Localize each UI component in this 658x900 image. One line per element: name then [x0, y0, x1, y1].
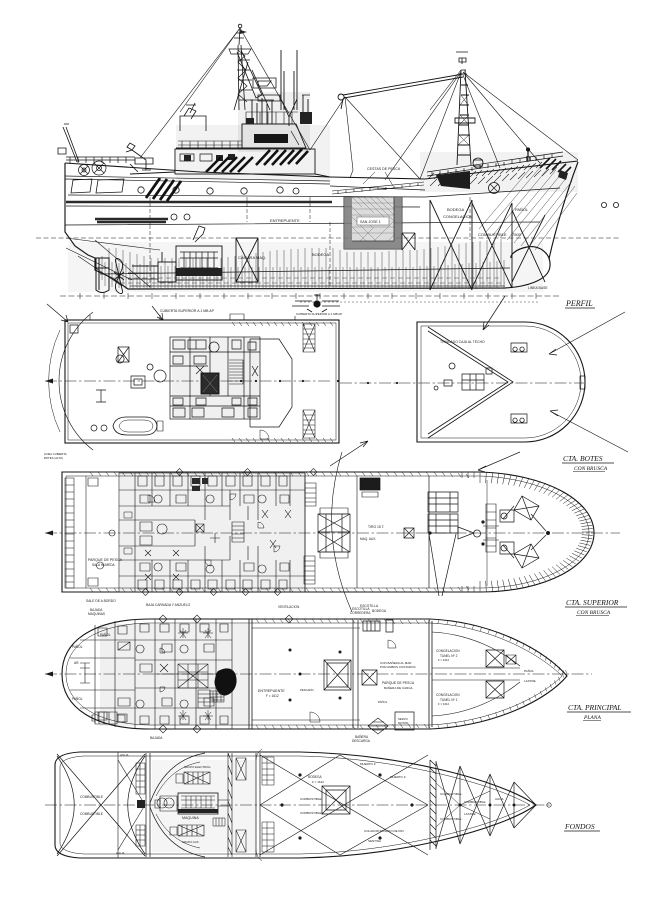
svg-text:CONGELACION: CONGELACION — [436, 693, 460, 697]
svg-text:CTA. BOTES: CTA. BOTES — [563, 454, 603, 463]
svg-text:BAJADA: BAJADA — [150, 736, 163, 740]
svg-text:CON BRUSCA: CON BRUSCA — [574, 466, 608, 472]
svg-text:7500: 7500 — [512, 232, 522, 237]
svg-text:PARQUE DE PESCA: PARQUE DE PESCA — [88, 558, 123, 562]
svg-text:COMBUSTIBLE: COMBUSTIBLE — [440, 792, 462, 796]
svg-text:PESCADO: PESCADO — [300, 688, 315, 692]
svg-text:BODEGA: BODEGA — [308, 775, 323, 779]
svg-text:COMBUSTIBLE: COMBUSTIBLE — [80, 795, 103, 799]
svg-text:PAÑOL: PAÑOL — [378, 699, 388, 704]
svg-text:FONDOS: FONDOS — [564, 822, 595, 831]
svg-text:BAJA CARNADA Y ANZUELO: BAJA CARNADA Y ANZUELO — [146, 603, 191, 607]
svg-text:LINEA BASE: LINEA BASE — [528, 286, 548, 290]
svg-text:PLANA: PLANA — [583, 715, 601, 721]
svg-text:BODEGA: BODEGA — [312, 252, 329, 257]
svg-text:COMBUSTIBLE: COMBUSTIBLE — [80, 812, 103, 816]
svg-text:DESCARGA: DESCARGA — [352, 739, 371, 743]
svg-text:MUERTO Z: MUERTO Z — [360, 762, 376, 766]
svg-text:SENTINA: SENTINA — [368, 839, 381, 843]
svg-text:CONGELACION: CONGELACION — [436, 649, 460, 653]
svg-text:COMBUSTIBLE: COMBUSTIBLE — [300, 811, 322, 815]
svg-text:CTA. SUPERIOR: CTA. SUPERIOR — [566, 598, 619, 607]
svg-text:COMBUSTIBLE: COMBUSTIBLE — [478, 232, 507, 237]
svg-text:MAQUINAS: MAQUINAS — [88, 612, 105, 616]
svg-text:PAÑOL: PAÑOL — [72, 644, 83, 649]
svg-text:AGUA: AGUA — [495, 797, 504, 801]
svg-text:TRINCADO CAJA AL TECHO: TRINCADO CAJA AL TECHO — [440, 340, 485, 344]
svg-text:SAN JOSE 1: SAN JOSE 1 — [360, 220, 381, 224]
svg-text:AGUA: AGUA — [120, 753, 129, 757]
svg-text:LASTRE: LASTRE — [464, 812, 476, 816]
svg-text:MAQUINA: MAQUINA — [182, 816, 199, 820]
svg-text:F = 1612: F = 1612 — [312, 780, 324, 784]
svg-text:F = 1612: F = 1612 — [266, 694, 279, 698]
svg-text:AR.: AR. — [74, 661, 79, 665]
svg-text:AGUA: AGUA — [116, 851, 125, 855]
svg-text:F = 1612: F = 1612 — [438, 658, 450, 662]
svg-text:PERFIL: PERFIL — [565, 299, 593, 308]
svg-text:CTA. PRINCIPAL: CTA. PRINCIPAL — [568, 703, 621, 712]
svg-text:CORREDERA: CORREDERA — [350, 611, 371, 615]
svg-text:CESTAS DE PESCA: CESTAS DE PESCA — [367, 167, 401, 171]
svg-text:CAMARA MAQ.: CAMARA MAQ. — [238, 255, 266, 260]
svg-text:COMBUSTIBLE: COMBUSTIBLE — [300, 797, 322, 801]
svg-text:PAÑOL: PAÑOL — [72, 696, 83, 701]
svg-text:MUERTO Z: MUERTO Z — [390, 775, 406, 779]
svg-text:MOTOR: MOTOR — [398, 721, 408, 725]
svg-text:COLADOR ROSADO DE RIO: COLADOR ROSADO DE RIO — [364, 829, 405, 833]
svg-text:PAÑOL: PAÑOL — [524, 668, 534, 673]
svg-text:CON BRUSCA: CON BRUSCA — [577, 610, 611, 616]
svg-text:ENTREPUENTE: ENTREPUENTE — [270, 218, 300, 223]
svg-text:SALA HUMEDA: SALA HUMEDA — [92, 563, 116, 567]
svg-text:ENTREPUENTE: ENTREPUENTE — [258, 689, 285, 693]
svg-text:MAQ. AUX.: MAQ. AUX. — [360, 537, 376, 541]
svg-text:COMBUSTIBLE: COMBUSTIBLE — [464, 800, 486, 804]
svg-text:COMBUSTIBLE: COMBUSTIBLE — [440, 817, 462, 821]
svg-text:CONGELACION: CONGELACION — [443, 214, 473, 219]
svg-text:BODEGA: BODEGA — [372, 609, 387, 613]
svg-text:LASTRE: LASTRE — [524, 679, 536, 683]
svg-text:GRUPO ELECTROG.: GRUPO ELECTROG. — [184, 765, 211, 769]
svg-text:PAÑOL: PAÑOL — [515, 207, 529, 212]
svg-text:CUBIERTA SUPERIOR A 1 MB AP: CUBIERTA SUPERIOR A 1 MB AP — [160, 309, 215, 313]
svg-text:PARQUE DE PESCA: PARQUE DE PESCA — [382, 681, 415, 685]
svg-text:CUBIERTA SUPERIOR A 1 MB AP: CUBIERTA SUPERIOR A 1 MB AP — [296, 312, 342, 316]
svg-text:BAÑERA DE CARGA: BAÑERA DE CARGA — [384, 685, 413, 690]
svg-text:BODEGA: BODEGA — [447, 207, 464, 212]
svg-text:VENTILACION: VENTILACION — [278, 605, 300, 609]
svg-text:TIRO 15 T.: TIRO 15 T. — [368, 525, 384, 529]
svg-text:PAÑOL: PAÑOL — [100, 632, 111, 637]
svg-text:SALE DE A BORDO: SALE DE A BORDO — [86, 599, 116, 603]
svg-text:GRUPO AUX.: GRUPO AUX. — [182, 840, 200, 844]
svg-text:BOTES (ALTO): BOTES (ALTO) — [44, 456, 63, 460]
svg-text:POR AMBOS COSTADOS: POR AMBOS COSTADOS — [380, 665, 415, 669]
svg-text:F = 1612: F = 1612 — [438, 702, 450, 706]
